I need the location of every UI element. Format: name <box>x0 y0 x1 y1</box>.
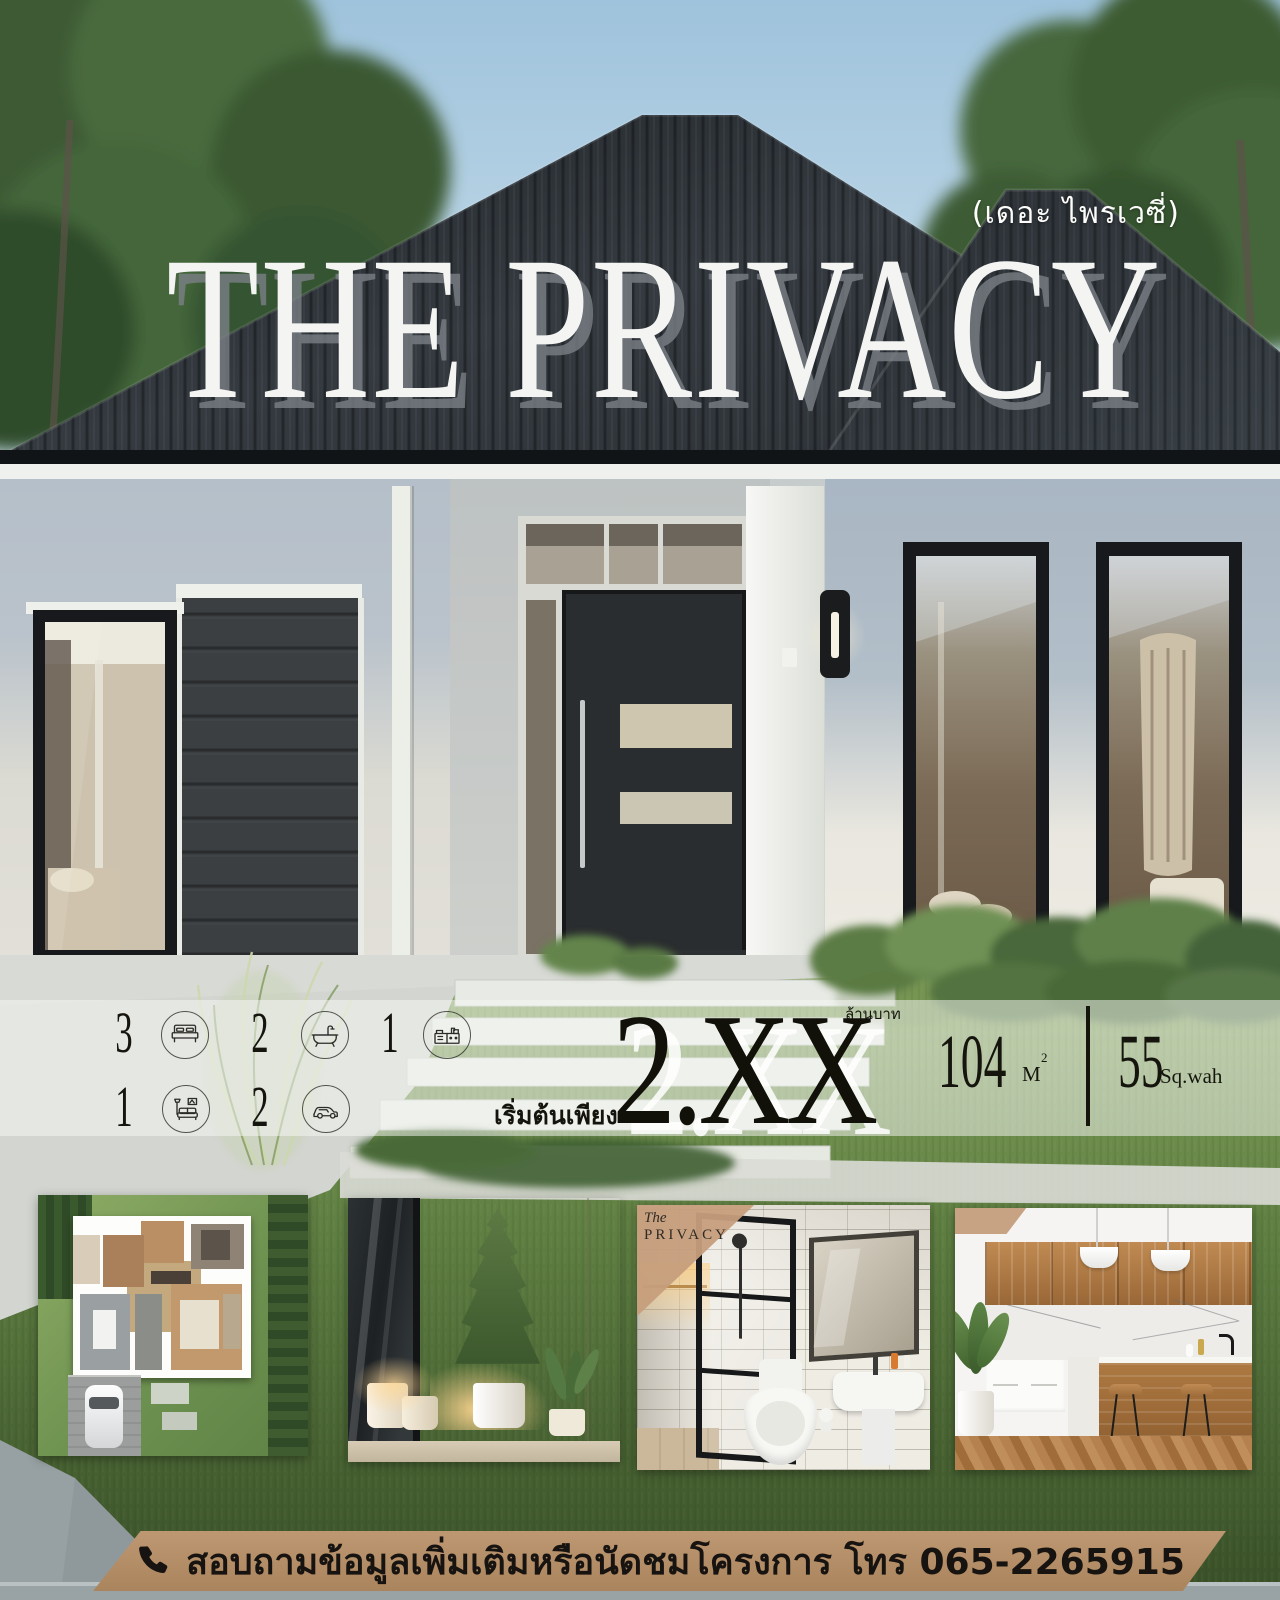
floor-plan-footprint <box>73 1216 251 1378</box>
paper-rolls <box>819 1408 833 1422</box>
area-divider <box>1086 1006 1090 1126</box>
usable-area-exponent: 2 <box>1041 1050 1048 1066</box>
shower-pipe <box>739 1240 742 1338</box>
bathtub-icon <box>301 1011 349 1059</box>
gutter <box>0 464 1280 479</box>
usable-area-unit: M <box>1022 1062 1041 1087</box>
contact-message: สอบถามข้อมูลเพิ่มเติมหรือนัดชมโครงการ โท… <box>186 1533 1185 1590</box>
gallery-floor-plan <box>38 1195 308 1456</box>
bed-icon <box>161 1011 209 1059</box>
plan-hall <box>141 1221 184 1263</box>
specs-band: 3 2 1 1 2 เริ่มต้นเพียง 2.XX ล้านบาท 104… <box>0 1000 1280 1136</box>
bedroom-count: 3 <box>107 1008 141 1058</box>
entry-floor <box>348 1441 620 1462</box>
house-number-plaque <box>782 648 797 667</box>
sink-faucet <box>873 1357 878 1374</box>
toilet <box>742 1359 818 1465</box>
plant-pot <box>549 1409 584 1435</box>
phone-icon <box>134 1544 168 1578</box>
bar-stool <box>1109 1384 1142 1397</box>
entry-sidelight <box>518 592 564 962</box>
land-area-value: 55 <box>1118 1032 1164 1092</box>
pendant-lamp <box>1151 1250 1190 1271</box>
plan-hedge-right <box>268 1195 309 1456</box>
toiletry-bottle <box>891 1353 898 1369</box>
car-park-count: 2 <box>243 1082 277 1132</box>
land-area-unit: Sq.wah <box>1160 1064 1222 1089</box>
gallery-bathroom: The PRIVACY <box>637 1205 930 1470</box>
badge-title: PRIVACY <box>644 1228 729 1243</box>
upper-wood-cabinets <box>985 1242 1252 1308</box>
privacy-badge-logo: The PRIVACY <box>644 1211 729 1243</box>
badge-corner <box>955 1208 1026 1234</box>
entry-transom <box>518 516 750 592</box>
porch-pillar-left <box>392 486 412 966</box>
front-door <box>564 592 744 962</box>
kitchen-icon <box>423 1011 471 1059</box>
poster-canvas: (เดอะ ไพรเวซี่) THE PRIVACY 3 2 1 1 2 เร… <box>0 0 1280 1600</box>
bathroom-count: 2 <box>243 1008 277 1058</box>
bottle <box>1198 1339 1204 1355</box>
kitchen-faucet <box>1219 1334 1234 1355</box>
price-prefix: เริ่มต้นเพียง <box>494 1096 618 1136</box>
plan-driveway <box>68 1375 141 1456</box>
plan-entry <box>73 1235 100 1284</box>
bar-stool <box>1181 1384 1214 1397</box>
pedestal-sink <box>833 1343 924 1465</box>
badge-script: The <box>644 1211 729 1226</box>
price-amount: 2.XX <box>612 1000 874 1138</box>
plan-bed-1 <box>103 1235 144 1287</box>
price-unit: ล้านบาท <box>845 1002 901 1026</box>
plan-path-stone <box>162 1412 197 1430</box>
plan-bath <box>135 1294 162 1370</box>
plan-car <box>85 1385 123 1448</box>
porch-pillar-right <box>746 486 824 966</box>
window-left <box>26 602 184 962</box>
car-icon <box>302 1085 350 1133</box>
fern-plant <box>544 1346 598 1415</box>
kitchen-plant <box>955 1302 1011 1396</box>
window-right-1 <box>903 542 1049 962</box>
plan-path-stone <box>151 1383 189 1404</box>
plant-pot <box>958 1391 994 1436</box>
gallery-entrance-garden <box>348 1198 620 1462</box>
vase <box>1186 1344 1193 1357</box>
kitchen-count: 1 <box>373 1008 407 1058</box>
contact-bar: สอบถามข้อมูลเพิ่มเติมหรือนัดชมโครงการ โท… <box>93 1531 1226 1591</box>
shower-head <box>731 1232 746 1248</box>
gallery-kitchen <box>955 1208 1252 1470</box>
fascia <box>0 450 1280 465</box>
living-room-icon <box>162 1085 210 1133</box>
herringbone-floor <box>955 1436 1252 1470</box>
project-title: THE PRIVACY <box>166 226 1113 431</box>
living-room-count: 1 <box>107 1082 141 1132</box>
usable-area-value: 104 <box>938 1032 1006 1092</box>
marble-backsplash <box>985 1305 1252 1360</box>
plant-pot <box>473 1383 525 1428</box>
